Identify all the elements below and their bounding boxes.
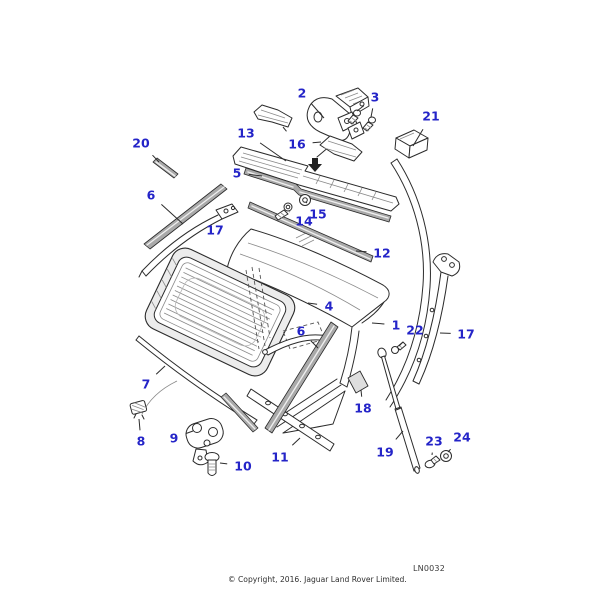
part-21-buffer [395,130,428,158]
leader-line-7 [156,366,165,374]
callout-8-19: 8 [137,434,146,449]
callout-16-5: 16 [288,137,306,152]
callout-20-4: 20 [132,136,150,151]
assembly-arrow-icon [308,158,322,172]
leader-line-6 [161,204,183,224]
callout-23-24: 23 [425,434,442,449]
callout-2-0: 2 [298,86,307,101]
callout-11-22: 11 [271,450,288,465]
leader-line-11 [292,438,300,445]
part-18-pad [348,371,368,393]
callout-21-2: 21 [422,109,439,124]
leader-line-10 [220,463,227,464]
leader-line-19 [396,431,403,439]
callout-17-16: 17 [457,327,474,342]
callout-14-10: 14 [295,214,313,229]
part-20-pad [153,158,178,178]
part-17-trim-right [413,254,460,384]
callout-6-7: 6 [147,188,156,203]
leader-line-16 [313,142,321,143]
leader-line-15 [306,202,307,203]
part-10-bolt [205,453,219,476]
part-22-ball-stud [392,342,407,354]
callout-5-6: 5 [233,166,242,181]
callout-12-11: 12 [373,246,390,261]
callout-17-8: 17 [206,223,223,238]
leader-line-3 [371,108,373,117]
leader-line-18 [361,390,362,397]
callout-10-21: 10 [234,459,252,474]
callout-4-12: 4 [325,299,334,314]
callout-1-13: 1 [392,318,401,333]
callout-13-3: 13 [237,126,254,141]
part-8-clip [130,400,147,419]
drawing-code: LN0032 [413,564,473,573]
leader-line-1 [372,323,384,324]
callout-3-1: 3 [371,90,380,105]
copyright-text: © Copyright, 2016. Jaguar Land Rover Lim… [228,575,407,584]
callout-9-20: 9 [170,431,179,446]
part-15-grommet [300,195,311,206]
leader-line-8 [139,419,140,430]
callout-19-23: 19 [376,445,393,460]
part-13-vent-panel [233,147,399,211]
exploded-parts-diagram: 2321132016561715141241226171878910111923… [0,0,600,600]
part-23-bolt [424,456,440,469]
callout-24-25: 24 [453,430,471,445]
leader-line-16 [283,127,287,131]
parts-diagram-page: 2321132016561715141241226171878910111923… [0,0,600,600]
callout-18-17: 18 [354,401,371,416]
callout-7-18: 7 [142,377,151,392]
part-24-washer [441,451,452,462]
callout-6-15: 6 [297,324,306,339]
callout-22-14: 22 [406,323,423,338]
